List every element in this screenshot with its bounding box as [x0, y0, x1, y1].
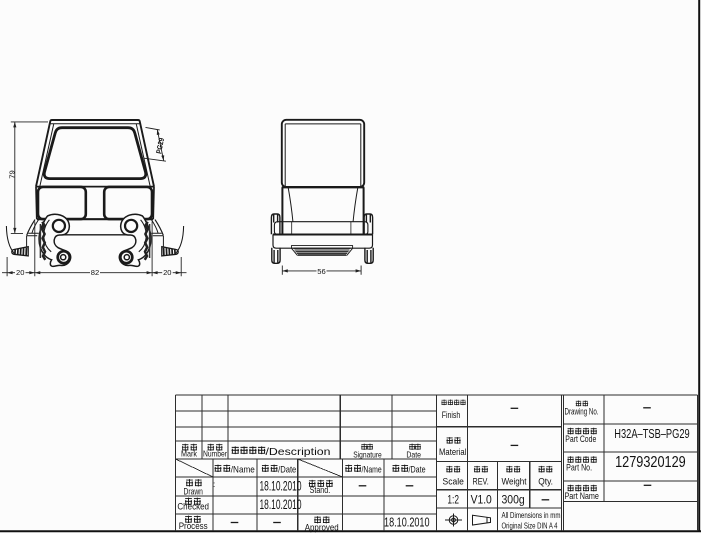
svg-text:Approved: Approved — [305, 523, 339, 533]
svg-text:Drawing No.: Drawing No. — [565, 406, 599, 416]
svg-text:Scale: Scale — [443, 477, 464, 487]
svg-text:V1.0: V1.0 — [471, 493, 492, 507]
svg-text:Material: Material — [439, 447, 466, 457]
svg-text:Drawn: Drawn — [184, 487, 203, 498]
svg-text:Part No.: Part No. — [566, 463, 592, 473]
svg-text:/Date: /Date — [278, 464, 296, 475]
svg-text:/Date: /Date — [409, 464, 426, 475]
svg-text:/Description: /Description — [266, 447, 331, 458]
svg-text:Finish: Finish — [442, 410, 461, 420]
svg-text:1279320129: 1279320129 — [615, 454, 686, 471]
svg-text:18.10.2010: 18.10.2010 — [260, 478, 302, 494]
svg-text:Checked: Checked — [177, 501, 209, 512]
svg-text:20: 20 — [16, 268, 24, 277]
svg-text:Date: Date — [406, 451, 421, 460]
svg-text:82: 82 — [91, 268, 99, 277]
svg-text:Mark: Mark — [181, 450, 198, 459]
svg-text:20: 20 — [163, 268, 171, 277]
svg-text:Stand.: Stand. — [310, 485, 331, 496]
svg-text:/Name: /Name — [231, 464, 255, 475]
svg-text:18.10.2010: 18.10.2010 — [384, 515, 430, 530]
svg-text:Weight: Weight — [501, 477, 527, 487]
svg-text:H32A–TSB–PG29: H32A–TSB–PG29 — [614, 426, 689, 441]
svg-text:18.10.2010: 18.10.2010 — [260, 496, 302, 512]
svg-text:79: 79 — [8, 170, 17, 178]
svg-text:/Name: /Name — [362, 464, 382, 475]
svg-text:300g: 300g — [502, 493, 525, 507]
svg-text:Number: Number — [203, 450, 227, 459]
svg-text::: : — [213, 480, 215, 489]
svg-text:Part Code: Part Code — [565, 434, 596, 444]
svg-text:56: 56 — [317, 267, 325, 276]
svg-text:All Dimensions in mm: All Dimensions in mm — [502, 510, 561, 520]
svg-text:1:2: 1:2 — [447, 493, 459, 507]
svg-text:Qty.: Qty. — [538, 477, 553, 487]
svg-text:Original Size DIN A 4: Original Size DIN A 4 — [502, 521, 558, 531]
svg-text:REV.: REV. — [472, 477, 488, 487]
svg-text:Part Name: Part Name — [565, 491, 599, 501]
svg-text:Process: Process — [179, 521, 208, 532]
svg-text:Signature: Signature — [353, 451, 382, 460]
